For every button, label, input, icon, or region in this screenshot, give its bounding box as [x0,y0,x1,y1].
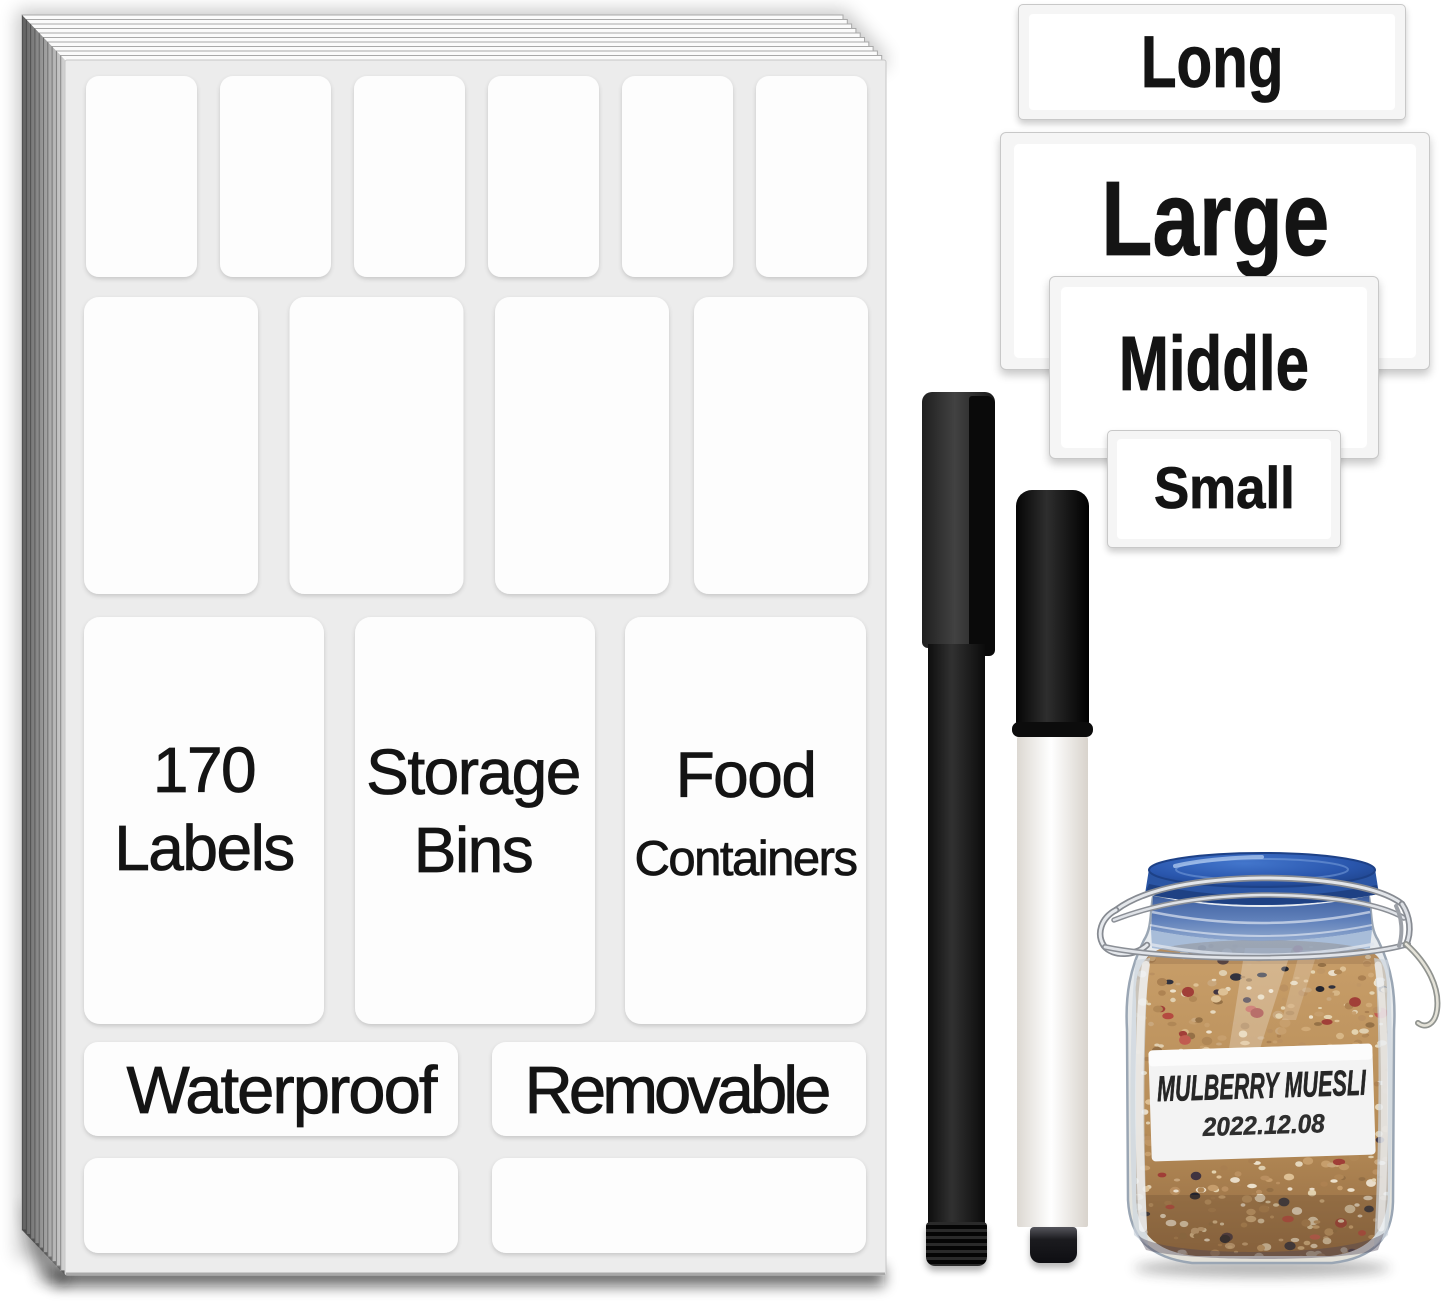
svg-text:2022.12.08: 2022.12.08 [1201,1108,1325,1142]
svg-text:MULBERRY MUESLI: MULBERRY MUESLI [1156,1062,1367,1110]
